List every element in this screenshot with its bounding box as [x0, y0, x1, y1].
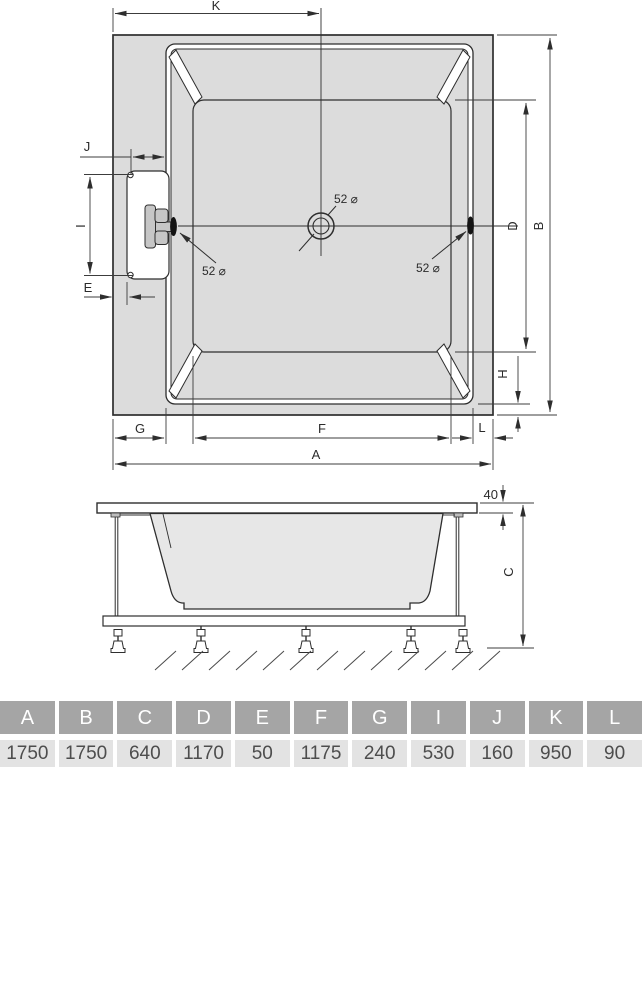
table-value-cell: 50 [235, 740, 290, 767]
dim-label-E: E [84, 280, 93, 295]
dim-label-H: H [495, 369, 510, 378]
leg-4 [404, 630, 418, 653]
table-value-cell: 240 [352, 740, 407, 767]
tub-body [150, 514, 443, 610]
frame-legs [111, 626, 470, 653]
plan-view: 52 ⌀ 52 ⌀ 52 ⌀ [73, 0, 557, 470]
leg-5 [456, 630, 470, 653]
table-value-cell: 1175 [294, 740, 349, 767]
table-header-cell: G [352, 701, 407, 734]
dimension-table-values: 1750 1750 640 1170 50 1175 240 530 160 9… [0, 740, 642, 767]
handle-grip [145, 205, 156, 248]
dim-label-K: K [212, 0, 221, 13]
side-dimension-lines [479, 485, 534, 648]
table-header-cell: A [0, 701, 55, 734]
dim-label-C: C [501, 567, 516, 576]
table-header-cell: D [176, 701, 231, 734]
table-value-cell: 530 [411, 740, 466, 767]
table-value-cell: 90 [587, 740, 642, 767]
dimension-table: A B C D E F G I J K L 1750 1750 640 1170… [0, 701, 642, 767]
table-header-cell: C [117, 701, 172, 734]
table-header-cell: K [529, 701, 584, 734]
leg-3 [299, 630, 313, 653]
dim-label-I: I [73, 224, 88, 228]
bracket-bolt-bottom [128, 272, 133, 277]
dim-label-J: J [84, 139, 91, 154]
table-value-cell: 1170 [176, 740, 231, 767]
jet-left [170, 217, 177, 236]
dim-label-B: B [531, 222, 546, 231]
table-header-cell: I [411, 701, 466, 734]
dim-label-G: G [135, 421, 145, 436]
table-value-cell: 640 [117, 740, 172, 767]
dim-label-40: 40 [484, 487, 498, 502]
table-value-cell: 1750 [0, 740, 55, 767]
jet-left-label: 52 ⌀ [202, 264, 226, 278]
dim-label-F: F [318, 421, 326, 436]
table-header-cell: B [59, 701, 114, 734]
table-value-cell: 1750 [59, 740, 114, 767]
deck-slab [97, 503, 477, 513]
frame-rail [103, 616, 465, 626]
bathtub-technical-drawing: 52 ⌀ 52 ⌀ 52 ⌀ [0, 0, 642, 1000]
table-value-cell: 950 [529, 740, 584, 767]
dimension-table-header: A B C D E F G I J K L [0, 701, 642, 734]
leg-1 [111, 630, 125, 653]
leg-2 [194, 630, 208, 653]
jet-right [467, 217, 474, 235]
jet-right-label: 52 ⌀ [416, 261, 440, 275]
table-header-cell: E [235, 701, 290, 734]
table-header-cell: F [294, 701, 349, 734]
drain-size-label: 52 ⌀ [334, 192, 358, 206]
table-header-cell: J [470, 701, 525, 734]
ground-hatching [155, 651, 500, 670]
handle-tab-top [155, 209, 168, 223]
side-view: 40 C [97, 485, 534, 670]
dim-label-A: A [312, 447, 321, 462]
frame-connector-left [111, 513, 120, 517]
table-header-cell: L [587, 701, 642, 734]
table-value-cell: 160 [470, 740, 525, 767]
handle-tab-bottom [155, 231, 168, 245]
dim-label-D: D [505, 221, 520, 230]
bracket-bolt-top [128, 172, 133, 177]
frame-connector-right [454, 513, 463, 517]
dim-label-L: L [478, 420, 485, 435]
drawing-canvas: 52 ⌀ 52 ⌀ 52 ⌀ [0, 0, 642, 700]
